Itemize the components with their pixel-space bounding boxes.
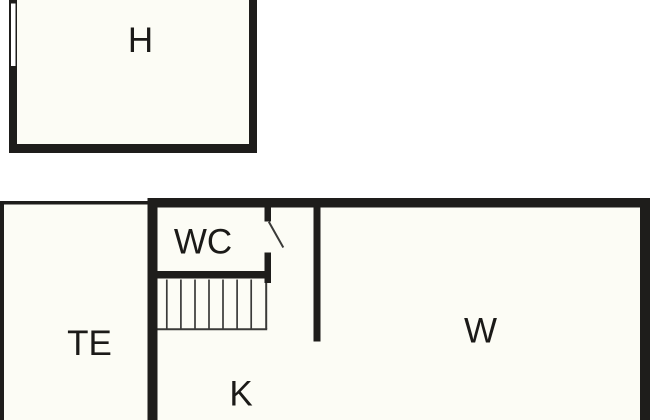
svg-text:W: W <box>464 312 497 351</box>
svg-text:TE: TE <box>67 324 112 363</box>
svg-text:H: H <box>128 21 153 60</box>
svg-text:K: K <box>229 375 252 414</box>
svg-text:WC: WC <box>174 223 232 262</box>
